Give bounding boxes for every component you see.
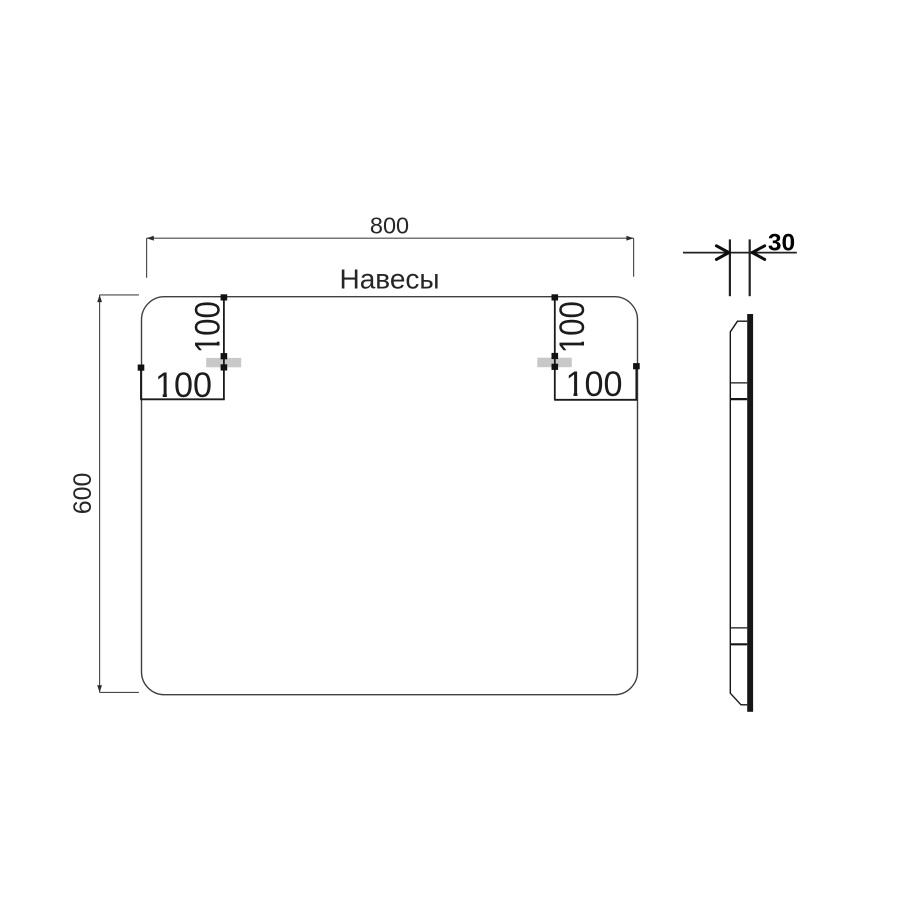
svg-text:600: 600 [69, 473, 97, 515]
svg-text:800: 800 [370, 212, 409, 238]
svg-text:100: 100 [188, 301, 227, 353]
svg-text:100: 100 [553, 301, 592, 353]
svg-text:Навесы: Навесы [339, 263, 439, 294]
svg-text:100: 100 [566, 364, 623, 404]
svg-text:100: 100 [155, 365, 212, 405]
svg-text:30: 30 [768, 230, 795, 257]
